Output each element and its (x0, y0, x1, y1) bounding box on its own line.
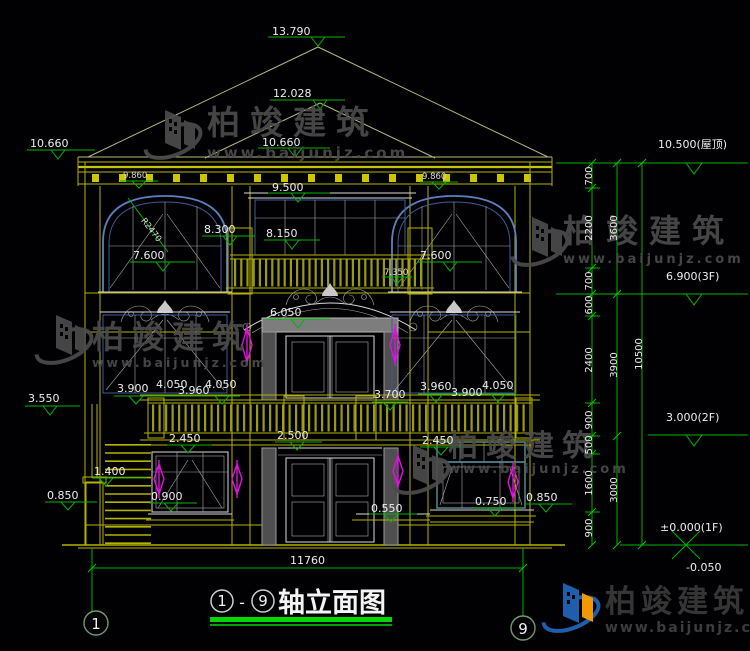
label-0850-left: 0.850 (47, 489, 79, 502)
arched-window-left (98, 196, 232, 322)
watermark-url: www.baijunjz.com (563, 252, 744, 267)
dim-500: 500 (584, 435, 595, 454)
brand-logo-bottom-right: 柏竣建筑 www.baijunjz.com (539, 583, 750, 638)
label-3700: 3.700 (374, 388, 406, 401)
label-2450-left: 2.450 (169, 432, 201, 445)
label-9860-right: 9.860 (422, 172, 446, 182)
label-10660-center: 10.660 (262, 136, 301, 149)
watermark-left: 柏竣建筑 www.baijunjz.com (32, 315, 268, 370)
level-1f: ±0.000(1F) (660, 521, 723, 534)
title-axis-left: 1 (217, 592, 227, 610)
dim-2200: 2200 (584, 215, 595, 240)
label-overall-width: 11760 (290, 554, 325, 567)
dim-900-1: 900 (584, 410, 595, 429)
watermark-brand: 柏竣建筑 (448, 429, 600, 464)
dim-700-1: 700 (584, 166, 595, 185)
label-9860-left: 9.860 (123, 171, 147, 181)
dim-3000: 3000 (609, 477, 620, 502)
label-1400: 1.400 (94, 465, 126, 478)
cad-canvas: 柏竣建筑 www.baijunjz.com 柏竣建筑 www.baijunjz.… (0, 0, 750, 651)
dim-900-2: 900 (584, 518, 595, 537)
dim-2400: 2400 (584, 347, 595, 372)
dim-10500: 10500 (634, 338, 645, 370)
title-underline-thick (210, 617, 392, 622)
brand-url: www.baijunjz.com (605, 620, 750, 636)
level-labels: 10.500(屋顶) 6.900(3F) 3.000(2F) ±0.000(1F… (658, 138, 727, 574)
drawing-title: 1 - 9 轴立面图 (210, 587, 392, 626)
level-3f: 6.900(3F) (666, 270, 719, 283)
label-3900-left: 3.900 (117, 382, 149, 395)
label-7350: 7.350 (384, 268, 408, 278)
label-0850-right: 0.850 (526, 491, 558, 504)
label-2500: 2.500 (277, 429, 309, 442)
label-13790: 13.790 (272, 25, 311, 38)
label-8150: 8.150 (266, 227, 298, 240)
label-12028: 12.028 (273, 87, 312, 100)
label-4050-right: 4.050 (482, 379, 514, 392)
center-3f-windows (244, 193, 416, 255)
dim-600: 600 (584, 295, 595, 314)
dim-3600: 3600 (609, 215, 620, 240)
page-title: 轴立面图 (278, 587, 386, 619)
label-0750: 0.750 (475, 495, 507, 508)
level-below-grade: -0.050 (686, 561, 721, 574)
label-6050: 6.050 (270, 306, 302, 319)
watermark-url: www.baijunjz.com (207, 144, 408, 162)
watermark-url: www.baijunjz.com (92, 355, 268, 370)
title-underline-thin (210, 624, 392, 626)
label-0550: 0.550 (371, 502, 403, 515)
label-9500: 9.500 (272, 181, 304, 194)
door-1f (262, 448, 398, 545)
label-2450-right: 2.450 (422, 434, 454, 447)
label-10660-left: 10.660 (30, 137, 69, 150)
label-0900: 0.900 (151, 490, 183, 503)
level-roof: 10.500(屋顶) (658, 138, 727, 151)
watermark-brand: 柏竣建筑 (92, 318, 252, 356)
label-7600-right: 7.600 (420, 249, 452, 262)
label-radius: R2470 (138, 216, 163, 244)
label-7600-left: 7.600 (133, 249, 165, 262)
dim-700-2: 700 (584, 271, 595, 290)
level-2f: 3.000(2F) (666, 411, 719, 424)
label-3900-right: 3.900 (451, 386, 483, 399)
axis-number-left: 1 (91, 615, 101, 633)
label-4050-l2: 4.050 (205, 378, 237, 391)
axis-number-right: 9 (518, 620, 528, 638)
label-3960-right: 3.960 (420, 380, 452, 393)
dim-1600: 1600 (584, 470, 595, 495)
label-8300: 8.300 (204, 223, 236, 236)
watermark-url: www.baijunjz.com (448, 462, 629, 477)
dim-3900: 3900 (609, 352, 620, 377)
brand-name: 柏竣建筑 (605, 584, 749, 620)
label-3550: 3.550 (28, 392, 60, 405)
elevation-drawing: 柏竣建筑 www.baijunjz.com 柏竣建筑 www.baijunjz.… (0, 0, 750, 651)
title-dash: - (239, 593, 245, 612)
watermark-right: 柏竣建筑 www.baijunjz.com (508, 212, 744, 272)
title-axis-right: 9 (258, 592, 268, 610)
